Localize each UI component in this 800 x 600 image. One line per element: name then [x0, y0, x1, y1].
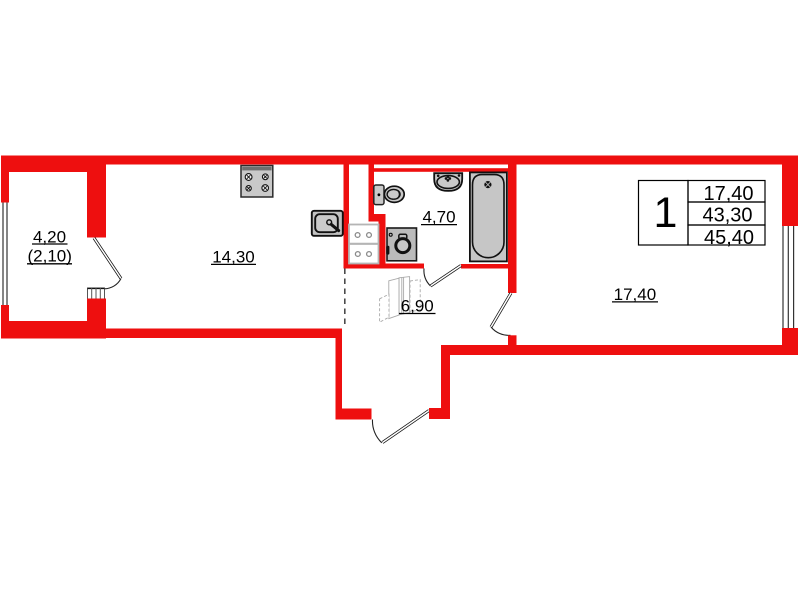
svg-text:45,40: 45,40	[704, 227, 754, 249]
svg-text:6,90: 6,90	[401, 297, 434, 316]
svg-text:17,40: 17,40	[703, 183, 753, 205]
svg-text:4,70: 4,70	[422, 208, 455, 227]
svg-text:43,30: 43,30	[702, 204, 752, 226]
svg-text:14,30: 14,30	[212, 247, 255, 266]
svg-text:17,40: 17,40	[614, 285, 657, 304]
svg-text:1: 1	[654, 189, 678, 237]
svg-text:(2,10): (2,10)	[27, 247, 71, 266]
